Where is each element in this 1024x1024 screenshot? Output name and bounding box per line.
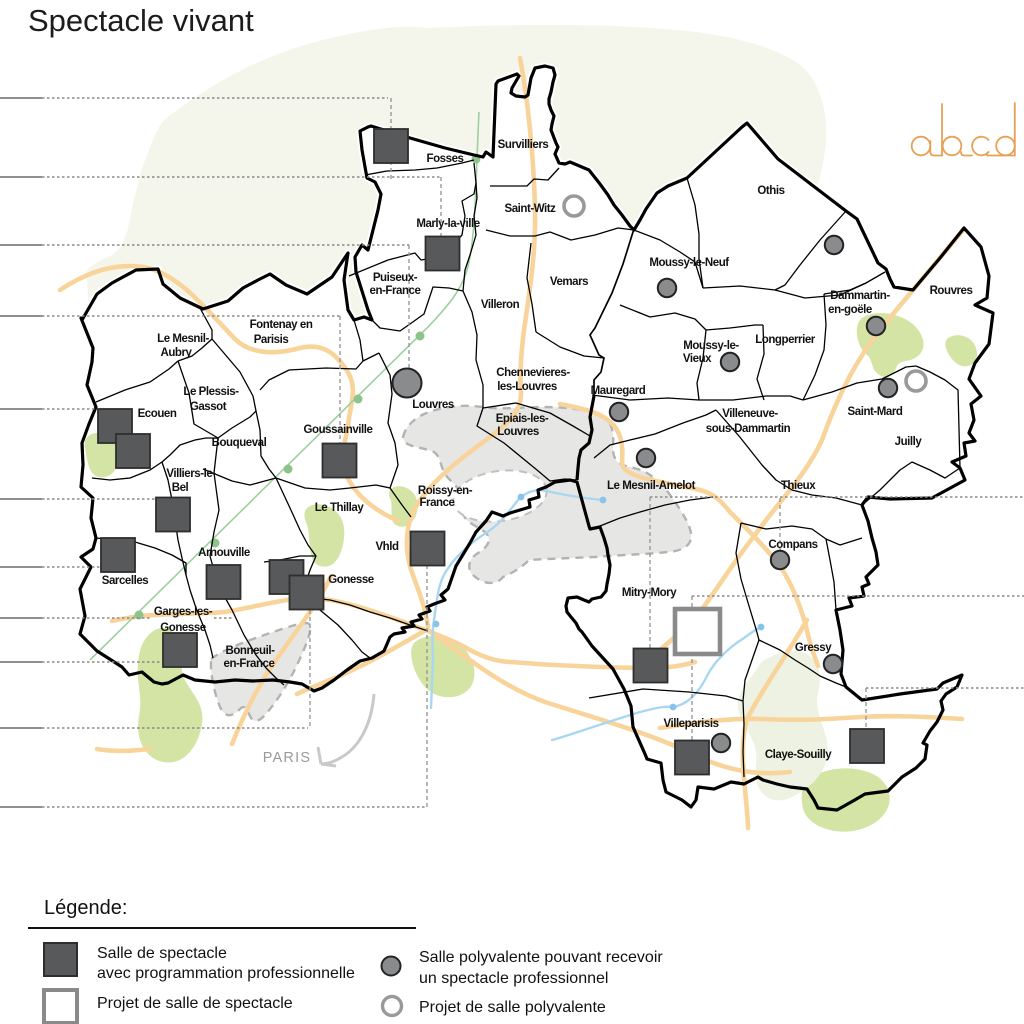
svg-text:Goussainville: Goussainville xyxy=(304,424,373,436)
svg-text:Dammartin-: Dammartin- xyxy=(830,290,890,302)
svg-text:Gassot: Gassot xyxy=(190,401,227,413)
svg-text:France: France xyxy=(419,497,454,509)
svg-text:Spectacle vivant: Spectacle vivant xyxy=(28,3,254,38)
svg-text:Villeparisis: Villeparisis xyxy=(663,718,718,730)
svg-text:Sarcelles: Sarcelles xyxy=(102,575,149,587)
svg-text:en-France: en-France xyxy=(224,658,275,670)
svg-text:Légende:: Légende: xyxy=(44,897,127,919)
svg-text:Puiseux-: Puiseux- xyxy=(373,272,418,284)
svg-text:Louvres: Louvres xyxy=(497,426,539,438)
svg-text:Chennevieres-: Chennevieres- xyxy=(496,367,570,379)
svg-text:les-Louvres: les-Louvres xyxy=(497,381,557,393)
svg-text:Parisis: Parisis xyxy=(254,334,289,346)
svg-text:Roissy-en-: Roissy-en- xyxy=(418,485,473,497)
svg-text:Marly-la-ville: Marly-la-ville xyxy=(416,218,479,230)
svg-text:Villeneuve-: Villeneuve- xyxy=(722,408,778,420)
svg-text:Louvres: Louvres xyxy=(412,399,454,411)
svg-text:avec programmation professionn: avec programmation professionnelle xyxy=(97,965,355,982)
svg-text:Arnouville: Arnouville xyxy=(198,547,250,559)
svg-text:Thieux: Thieux xyxy=(781,480,816,492)
svg-text:Longperrier: Longperrier xyxy=(755,334,816,346)
svg-text:Vemars: Vemars xyxy=(550,276,588,288)
svg-text:Saint-Witz: Saint-Witz xyxy=(505,203,557,215)
svg-text:Bonneuil-: Bonneuil- xyxy=(226,645,276,657)
svg-text:Moussy-le-Neuf: Moussy-le-Neuf xyxy=(649,257,729,269)
svg-text:Mitry-Mory: Mitry-Mory xyxy=(622,587,677,599)
svg-text:Saint-Mard: Saint-Mard xyxy=(848,406,903,418)
svg-text:Fontenay en: Fontenay en xyxy=(250,319,313,331)
svg-text:Moussy-le-: Moussy-le- xyxy=(683,340,739,352)
svg-text:Gressy: Gressy xyxy=(795,642,832,654)
svg-text:Vieux: Vieux xyxy=(683,353,712,365)
svg-text:Projet de salle polyvalente: Projet de salle polyvalente xyxy=(419,999,606,1016)
svg-text:Villeron: Villeron xyxy=(481,299,520,311)
svg-text:sous-Dammartin: sous-Dammartin xyxy=(706,423,791,435)
svg-text:Le Mesnil-Amelot: Le Mesnil-Amelot xyxy=(607,480,696,492)
svg-text:Gonesse: Gonesse xyxy=(160,622,205,634)
svg-text:Le Thillay: Le Thillay xyxy=(315,502,365,514)
svg-text:Fosses: Fosses xyxy=(427,153,464,165)
svg-text:Garges-les-: Garges-les- xyxy=(154,606,213,618)
svg-text:PARIS: PARIS xyxy=(263,750,311,766)
svg-text:Juilly: Juilly xyxy=(895,436,923,448)
svg-text:Compans: Compans xyxy=(768,539,817,551)
svg-text:en-goële: en-goële xyxy=(828,304,872,316)
svg-text:Survilliers: Survilliers xyxy=(498,139,549,151)
svg-text:Mauregard: Mauregard xyxy=(591,385,646,397)
svg-text:Bel: Bel xyxy=(172,482,189,494)
svg-text:Bouqueval: Bouqueval xyxy=(212,437,267,449)
svg-text:Ecouen: Ecouen xyxy=(138,408,177,420)
svg-text:Epiais-les-: Epiais-les- xyxy=(496,413,549,425)
svg-text:Aubry: Aubry xyxy=(161,347,193,359)
svg-text:Salle polyvalente pouvant rece: Salle polyvalente pouvant recevoir xyxy=(419,949,663,966)
svg-text:en-France: en-France xyxy=(370,285,421,297)
svg-text:Gonesse: Gonesse xyxy=(328,574,373,586)
svg-text:Salle de spectacle: Salle de spectacle xyxy=(97,945,227,962)
svg-text:Othis: Othis xyxy=(757,185,784,197)
svg-text:Claye-Souilly: Claye-Souilly xyxy=(765,749,832,761)
svg-text:Villiers-le-: Villiers-le- xyxy=(166,468,216,480)
svg-text:Vhld: Vhld xyxy=(375,541,399,553)
svg-text:Le Mesnil-: Le Mesnil- xyxy=(157,333,209,345)
svg-text:Projet de salle de spectacle: Projet de salle de spectacle xyxy=(97,995,293,1012)
svg-text:un spectacle professionnel: un spectacle professionnel xyxy=(419,970,608,987)
svg-text:Le Plessis-: Le Plessis- xyxy=(183,386,239,398)
svg-text:Rouvres: Rouvres xyxy=(930,285,973,297)
